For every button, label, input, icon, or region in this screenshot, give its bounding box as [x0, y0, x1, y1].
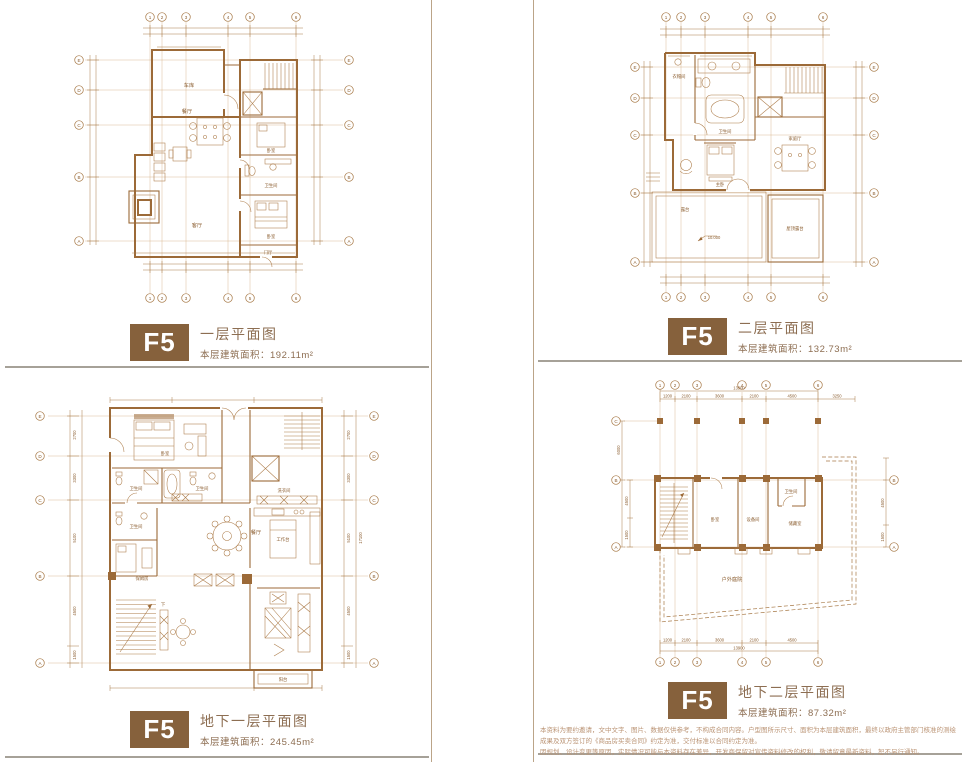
room-label-bath: 卫生间: [785, 488, 798, 495]
room-label-master: 主卧: [716, 181, 725, 188]
floor2-bathroom: [675, 59, 750, 123]
basement1-title: 地下一层平面图: [200, 711, 314, 731]
svg-text:5100: 5100: [346, 533, 351, 543]
basement1-dining: [207, 516, 247, 556]
svg-text:4: 4: [227, 15, 230, 20]
svg-text:B: B: [633, 191, 636, 196]
basement1-tea-area: [160, 610, 196, 650]
svg-text:6: 6: [822, 295, 825, 300]
floor2-stair: [784, 67, 824, 93]
svg-text:3: 3: [696, 660, 699, 665]
svg-text:6000: 6000: [616, 445, 621, 455]
disclaimer: 本资料为要约邀请，文中文字、图片、数据仅供参考，不构成合同内容。户型图所示尺寸、…: [540, 725, 962, 758]
room-label-family: 家庭厅: [789, 135, 803, 142]
svg-text:2: 2: [680, 15, 683, 20]
svg-text:E: E: [872, 65, 875, 70]
svg-text:B: B: [347, 175, 350, 180]
basement1-label: F5 地下一层平面图 本层建筑面积：245.45m²: [130, 711, 314, 748]
svg-text:2100: 2100: [681, 394, 691, 399]
floor1-label: F5 一层平面图 本层建筑面积：192.11m²: [130, 324, 313, 361]
basement2-title: 地下二层平面图: [738, 682, 847, 702]
plan-floor2: 1 2 3 4 5 6 1 2 3 4 5 6 E D C B A E D C …: [590, 5, 920, 310]
svg-text:E: E: [372, 414, 375, 419]
svg-text:5: 5: [249, 15, 252, 20]
svg-text:1: 1: [665, 295, 668, 300]
rule-top-right: [538, 360, 962, 362]
floor2-area-label: 本层建筑面积：: [738, 344, 808, 355]
svg-text:6: 6: [822, 15, 825, 20]
basement1-badge: F5: [130, 711, 189, 748]
room-label-bedroom2: 卧室: [267, 147, 276, 154]
svg-text:B: B: [892, 478, 895, 483]
room-label-bath3: 卫生间: [130, 523, 143, 530]
svg-text:5: 5: [249, 296, 252, 301]
svg-text:E: E: [347, 58, 350, 63]
svg-text:3: 3: [185, 296, 188, 301]
floor1-stair: [265, 63, 293, 89]
svg-text:4500: 4500: [787, 638, 797, 643]
svg-text:4: 4: [741, 660, 744, 665]
svg-text:2: 2: [161, 296, 164, 301]
floor1-drawing: 1 2 3 4 5 6 1 2 3 4 5 6 E D C B A E D C …: [57, 5, 397, 310]
room-label-balcony: 阳台: [279, 676, 288, 683]
svg-text:2: 2: [674, 383, 677, 388]
svg-text:6: 6: [295, 15, 298, 20]
room-label-bath1: 卫生间: [130, 485, 143, 492]
room-label-equipment: 设备间: [747, 516, 760, 523]
room-label-nanny: 保姆房: [136, 575, 149, 582]
svg-text:4500: 4500: [624, 496, 629, 506]
floor2-label: F5 二层平面图 本层建筑面积：132.73m²: [668, 318, 852, 355]
room-label-bath: 卫生间: [265, 182, 278, 189]
room-label-foyer: 门厅: [264, 249, 273, 256]
floor2-badge: F5: [668, 318, 727, 355]
svg-text:1200: 1200: [663, 394, 673, 399]
plan-basement1: E D C B A E D C B A 2700 3300 5100 4500 …: [22, 388, 402, 705]
floor1-title: 一层平面图: [200, 324, 313, 344]
floor2-furniture: [646, 143, 815, 181]
svg-text:3: 3: [704, 15, 707, 20]
vertical-divider-left: [431, 0, 432, 762]
svg-text:3250: 3250: [832, 394, 842, 399]
basement2-label: F5 地下二层平面图 本层建筑面积：87.32m²: [668, 682, 847, 719]
svg-text:3300: 3300: [72, 473, 77, 483]
svg-text:B: B: [372, 574, 375, 579]
basement1-dim-text: 2700 3300 5100 4500 1500 2700 3300 5100 …: [72, 430, 363, 660]
svg-text:1500: 1500: [72, 650, 77, 660]
svg-text:E: E: [633, 65, 636, 70]
svg-text:2100: 2100: [749, 638, 759, 643]
floor1-area-label: 本层建筑面积：: [200, 350, 270, 361]
svg-text:B: B: [77, 175, 80, 180]
room-label-garage: 车库: [184, 81, 194, 89]
floor1-room-labels: 车库 餐厅 客厅 卧室 卫生间 卧室 门厅: [182, 81, 278, 256]
rule-bottom-left: [5, 756, 429, 758]
disclaimer-line2: 因规划、设计变更等原因，实际情况可能与本资料存在差异，开发商保留对宣传资料修改的…: [540, 747, 962, 758]
basement1-stair-down: [116, 600, 156, 654]
floor1-axes: 1 2 3 4 5 6 1 2 3 4 5 6 E D C B A E D C …: [75, 13, 354, 303]
svg-text:5100: 5100: [72, 533, 77, 543]
basement2-area-value: 87.32m²: [808, 708, 846, 719]
svg-text:1: 1: [659, 383, 662, 388]
vertical-divider-right: [533, 0, 534, 762]
basement1-room-labels: 卧室 卫生间 卫生间 卫生间 保姆房 洗衣间 餐厅 工作台 下 阳台: [130, 450, 291, 683]
svg-text:1: 1: [665, 15, 668, 20]
floor2-drawing: 1 2 3 4 5 6 1 2 3 4 5 6 E D C B A E D C …: [590, 5, 920, 305]
room-label-bedroom: 卧室: [161, 450, 170, 457]
basement2-badge: F5: [668, 682, 727, 719]
basement1-area-label: 本层建筑面积：: [200, 737, 270, 748]
svg-text:6: 6: [295, 296, 298, 301]
svg-text:1: 1: [149, 296, 152, 301]
basement2-stair: [660, 483, 688, 543]
room-label-worktop: 工作台: [277, 536, 290, 543]
svg-text:3: 3: [185, 15, 188, 20]
basement1-hall-deco: [108, 572, 252, 586]
svg-text:4: 4: [747, 295, 750, 300]
floor2-elevator: [758, 97, 782, 117]
svg-text:B: B: [614, 478, 617, 483]
room-label-closet: 衣帽间: [673, 73, 686, 80]
svg-text:3: 3: [704, 295, 707, 300]
room-label-bath: 卫生间: [719, 128, 732, 135]
svg-text:5: 5: [765, 660, 768, 665]
basement2-courtyard: [660, 457, 856, 622]
svg-text:6: 6: [817, 383, 820, 388]
room-label-bedroom: 卧室: [267, 233, 276, 240]
room-label-dining: 餐厅: [182, 107, 192, 115]
rule-top-left: [5, 366, 429, 368]
plan-floor1: 1 2 3 4 5 6 1 2 3 4 5 6 E D C B A E D C …: [57, 5, 397, 315]
svg-text:2100: 2100: [749, 394, 759, 399]
basement2-room-labels: 卧室 设备间 储藏室 卫生间 户外庭院: [711, 488, 802, 583]
svg-text:B: B: [38, 574, 41, 579]
svg-text:3600: 3600: [715, 394, 725, 399]
svg-text:4500: 4500: [787, 394, 797, 399]
floor2-area-value: 132.73m²: [808, 344, 852, 355]
floor1-area-value: 192.11m²: [270, 350, 313, 361]
svg-text:E: E: [38, 414, 41, 419]
basement1-drawing: E D C B A E D C B A 2700 3300 5100 4500 …: [22, 388, 402, 700]
svg-text:2700: 2700: [346, 430, 351, 440]
plan-basement2: 1 2 3 4 5 6 1 2 3 4 5 6 C B A B A ​ 1390…: [590, 373, 920, 678]
floor1-elevator: [243, 92, 262, 115]
svg-text:5: 5: [770, 15, 773, 20]
svg-text:5: 5: [765, 383, 768, 388]
basement1-area-value: 245.45m²: [270, 737, 314, 748]
svg-text:1500: 1500: [346, 650, 351, 660]
room-label-bedroom: 卧室: [711, 516, 720, 523]
svg-text:2100: 2100: [681, 638, 691, 643]
svg-text:4500: 4500: [72, 606, 77, 616]
floor2-title: 二层平面图: [738, 318, 852, 338]
svg-text:2700: 2700: [72, 430, 77, 440]
svg-text:3300: 3300: [346, 473, 351, 483]
room-label-living: 客厅: [192, 221, 202, 229]
floorplan-sheet: { "page": {"accent":"#86613c","line_colo…: [0, 0, 965, 762]
svg-text:1500: 1500: [624, 530, 629, 540]
room-label-courtyard: 户外庭院: [722, 575, 744, 583]
room-label-bath2: 卫生间: [196, 485, 209, 492]
svg-text:17100: 17100: [358, 532, 363, 544]
basement2-drawing: 1 2 3 4 5 6 1 2 3 4 5 6 C B A B A ​ 1390…: [590, 373, 920, 673]
svg-text:4500: 4500: [346, 606, 351, 616]
basement1-media-room: [265, 592, 310, 656]
room-label-dining: 餐厅: [251, 528, 261, 536]
floor1-badge: F5: [130, 324, 189, 361]
room-label-stairs-down: 下: [161, 602, 166, 608]
elevation-marker: 10.000: [708, 235, 721, 240]
basement1-axes: E D C B A E D C B A: [36, 412, 379, 668]
svg-text:13900: 13900: [733, 646, 745, 651]
basement1-kitchen: [254, 508, 320, 564]
svg-text:E: E: [77, 58, 80, 63]
room-label-terrace: 露台: [681, 206, 690, 213]
svg-text:13900: 13900: [733, 386, 745, 391]
svg-text:4: 4: [227, 296, 230, 301]
svg-text:1200: 1200: [663, 638, 673, 643]
svg-text:1: 1: [659, 660, 662, 665]
svg-text:2: 2: [674, 660, 677, 665]
svg-text:2: 2: [680, 295, 683, 300]
svg-text:4: 4: [747, 15, 750, 20]
svg-text:3: 3: [696, 383, 699, 388]
svg-text:6: 6: [817, 660, 820, 665]
svg-text:4500: 4500: [880, 498, 885, 508]
disclaimer-line1: 本资料为要约邀请，文中文字、图片、数据仅供参考，不构成合同内容。户型图所示尺寸、…: [540, 725, 962, 747]
svg-text:1: 1: [149, 15, 152, 20]
room-label-laundry: 洗衣间: [278, 487, 291, 494]
svg-text:1500: 1500: [880, 532, 885, 542]
svg-text:5: 5: [770, 295, 773, 300]
svg-text:3600: 3600: [715, 638, 725, 643]
svg-text:2: 2: [161, 15, 164, 20]
room-label-storage: 储藏室: [789, 520, 803, 527]
svg-text:B: B: [872, 191, 875, 196]
basement2-doors: [710, 476, 793, 508]
basement1-bedroom: [134, 414, 206, 460]
basement2-area-label: 本层建筑面积：: [738, 708, 808, 719]
room-label-roof-terrace: 屋顶露台: [786, 225, 803, 232]
